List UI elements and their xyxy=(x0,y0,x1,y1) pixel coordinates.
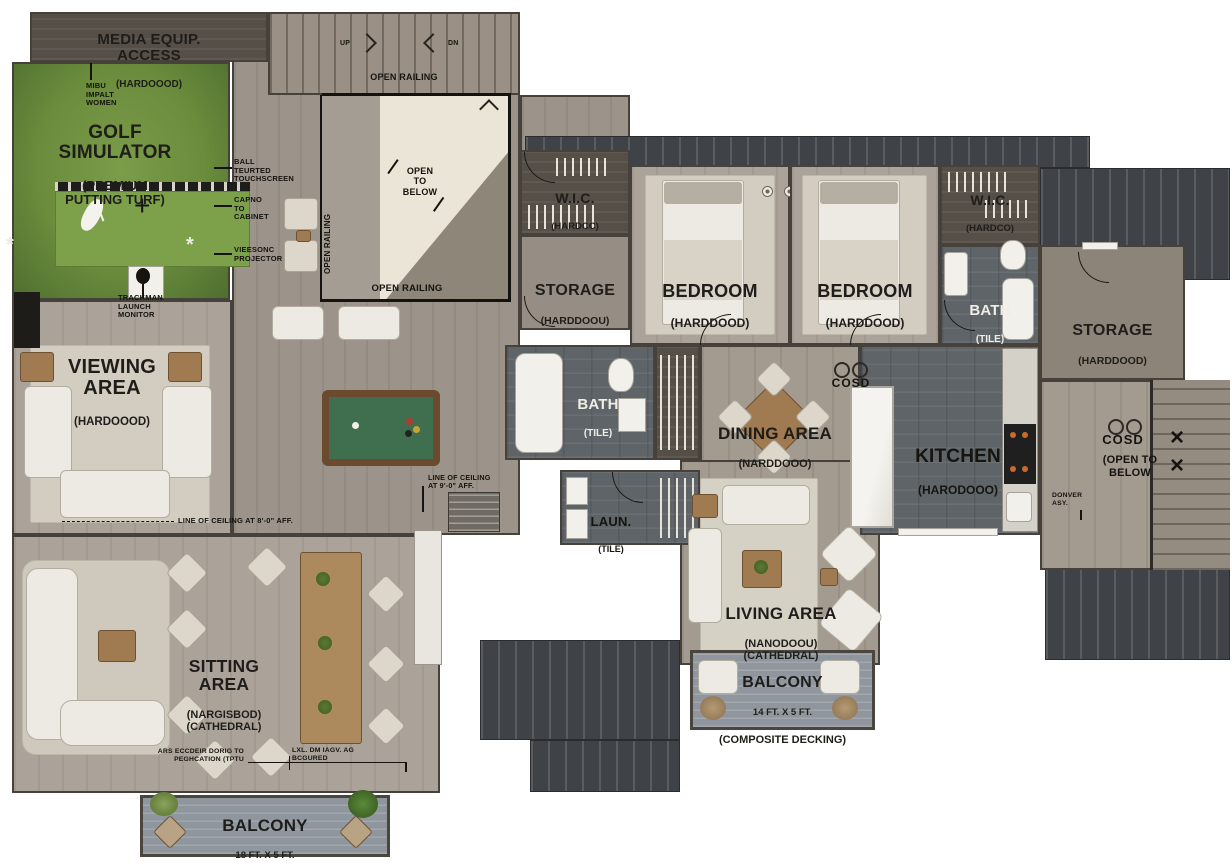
label-dining-area: DINING AREA (NARDDOOO) xyxy=(695,408,855,471)
center-closet-hangers xyxy=(660,355,694,450)
railing-bottom xyxy=(322,299,511,302)
hall-armchair xyxy=(284,198,318,230)
label-kitchen: KITCHEN (HARODOOO) xyxy=(878,430,1038,496)
ann-cabinet-leader xyxy=(214,205,232,207)
ann-impact-screen: MIBU IMPALT WOMEN xyxy=(86,82,117,108)
ann-cabinet: CAPNO TO CABINET xyxy=(234,196,269,222)
ann-projector-leader xyxy=(214,253,232,255)
cue-ball xyxy=(352,422,359,429)
ann-note-left: ARS ECCDEIR DORIG TO PEGHCATION (TPTU xyxy=(96,748,244,764)
ann-trackman: TRACKMAN LAUNCH MONITOR xyxy=(118,294,163,320)
hall-armchair xyxy=(284,240,318,272)
label-balcony-left: BALCONY 18 FT. X 5 FT. (COMPOSITE DECKIN… xyxy=(140,800,390,864)
ann-open-below-right: (OPEN TO BELOW xyxy=(1094,454,1166,479)
label-storage-right: STORAGE (HARDDOOD) xyxy=(1040,306,1185,367)
roof-bottom-center-step xyxy=(530,740,680,792)
hall-sofa xyxy=(338,306,400,340)
stairs-up-label: UP xyxy=(340,40,350,48)
label-bedroom-right: BEDROOM (HARDDOOD) xyxy=(790,265,940,330)
ann-note-left-tick xyxy=(405,762,407,772)
ann-ceiling-9: LINE OF CEILING AT 9'-0" AFF. xyxy=(428,474,491,491)
label-bath-right: BATH (TILE) xyxy=(940,286,1040,346)
roof-right-lower xyxy=(1045,565,1230,660)
hall-sofa xyxy=(272,306,324,340)
sitting-coffee-table xyxy=(98,630,136,662)
label-wic-left: W.I.C. (HARDCC) xyxy=(520,174,630,232)
bath-center-tub xyxy=(515,353,563,453)
ann-open-railing-top: OPEN RAILING xyxy=(352,72,456,82)
label-balcony-center: BALCONY 14 FT. X 5 FT. (COMPOSITE DECKIN… xyxy=(690,658,875,747)
label-storage-left: STORAGE (HARDDOOU) xyxy=(520,266,630,327)
ann-impact-leader xyxy=(90,63,92,80)
living-sofa-left xyxy=(688,528,722,623)
pool-ball xyxy=(413,426,420,433)
ann-note-right-leader xyxy=(289,756,290,770)
hall-side-table xyxy=(296,230,311,242)
stair-x-mark: × xyxy=(1170,452,1184,480)
sitting-counter xyxy=(414,530,442,665)
living-side-table xyxy=(820,568,838,586)
floor-plan: + * * UP DN xyxy=(0,0,1232,864)
label-laundry: LAUN. (TILE) xyxy=(576,498,646,555)
staircase-top xyxy=(268,12,520,95)
label-bedroom-left: BEDROOM (HARDDOOD) xyxy=(630,265,790,330)
ann-cosd-center: COSD xyxy=(826,377,876,391)
pool-table xyxy=(322,390,440,466)
living-sofa-top xyxy=(722,485,810,525)
bedroom-left-pillows xyxy=(664,182,742,204)
living-side-table xyxy=(692,494,718,518)
label-sitting-area: SITTING AREA (NARGISBOD) (CATHEDRAL) xyxy=(150,640,298,733)
pool-ball xyxy=(406,418,413,425)
railing-right xyxy=(508,93,511,302)
sitting-bar-table xyxy=(300,552,362,744)
ann-touchscreen-leader xyxy=(214,167,232,169)
viewing-sofa-bottom xyxy=(60,470,170,518)
stairs-dn-label: DN xyxy=(448,40,459,48)
ann-open-railing-bottom: OPEN RAILING xyxy=(352,284,462,295)
plant-icon xyxy=(754,560,768,574)
label-viewing-area: VIEWING AREA (HARDOOOD) xyxy=(32,340,192,428)
ann-open-railing-side: OPEN RAILING xyxy=(323,188,332,274)
ann-ceiling-9-leader xyxy=(422,486,424,512)
label-living-area: LIVING AREA (NANODOOU) (CATHEDRAL) xyxy=(721,588,841,663)
kitchen-window-sill xyxy=(898,528,998,536)
plant-icon xyxy=(318,700,332,714)
roof-bottom-center xyxy=(480,640,680,740)
ann-projector: VIEESONC PROJECTOR xyxy=(234,246,282,263)
ann-ceiling-8-leader xyxy=(62,521,174,522)
trackman-device-icon xyxy=(136,268,150,284)
label-media-access: MEDIA EQUIP. ACCESS (HARDOOOD) xyxy=(30,15,268,91)
ann-note-right: LXL. DM IAGV. AG BCGURED xyxy=(292,747,382,763)
kitchen-sink xyxy=(1006,492,1032,522)
wall-sconce-icon xyxy=(762,186,773,197)
bath-right-toilet xyxy=(1000,240,1026,270)
ann-open-to-below: OPEN TO BELOW xyxy=(396,166,444,197)
label-golf-simulator: GOLF SIMULATOR (PREMIUM PUTTING TURF) xyxy=(40,106,190,207)
pool-ball xyxy=(405,430,412,437)
railing-left xyxy=(320,95,322,302)
label-wic-right: W.I.C. (HARDCO) xyxy=(940,176,1040,234)
ann-dormer: DONVER ASY. xyxy=(1052,492,1082,508)
stair-x-mark: × xyxy=(1170,424,1184,452)
railing-top xyxy=(322,93,511,96)
bedroom-right-pillows xyxy=(820,182,898,204)
mud-bench xyxy=(448,492,500,532)
plant-icon xyxy=(316,572,330,586)
label-bath-center: BATH (TILE) xyxy=(558,380,638,440)
ann-dormer-leader xyxy=(1080,510,1082,520)
ann-cosd-right: COSD xyxy=(1098,433,1148,448)
ann-ceiling-8: LINE OF CEILING AT 8'-0" AFF. xyxy=(178,517,293,526)
plant-icon xyxy=(318,636,332,650)
turf-plant-icon: * xyxy=(6,234,14,257)
ann-touchscreen: BALL TEURTED TOUCHSCREEN xyxy=(234,158,294,184)
storage-right-door xyxy=(1082,242,1118,250)
turf-plant-icon: * xyxy=(186,234,194,257)
